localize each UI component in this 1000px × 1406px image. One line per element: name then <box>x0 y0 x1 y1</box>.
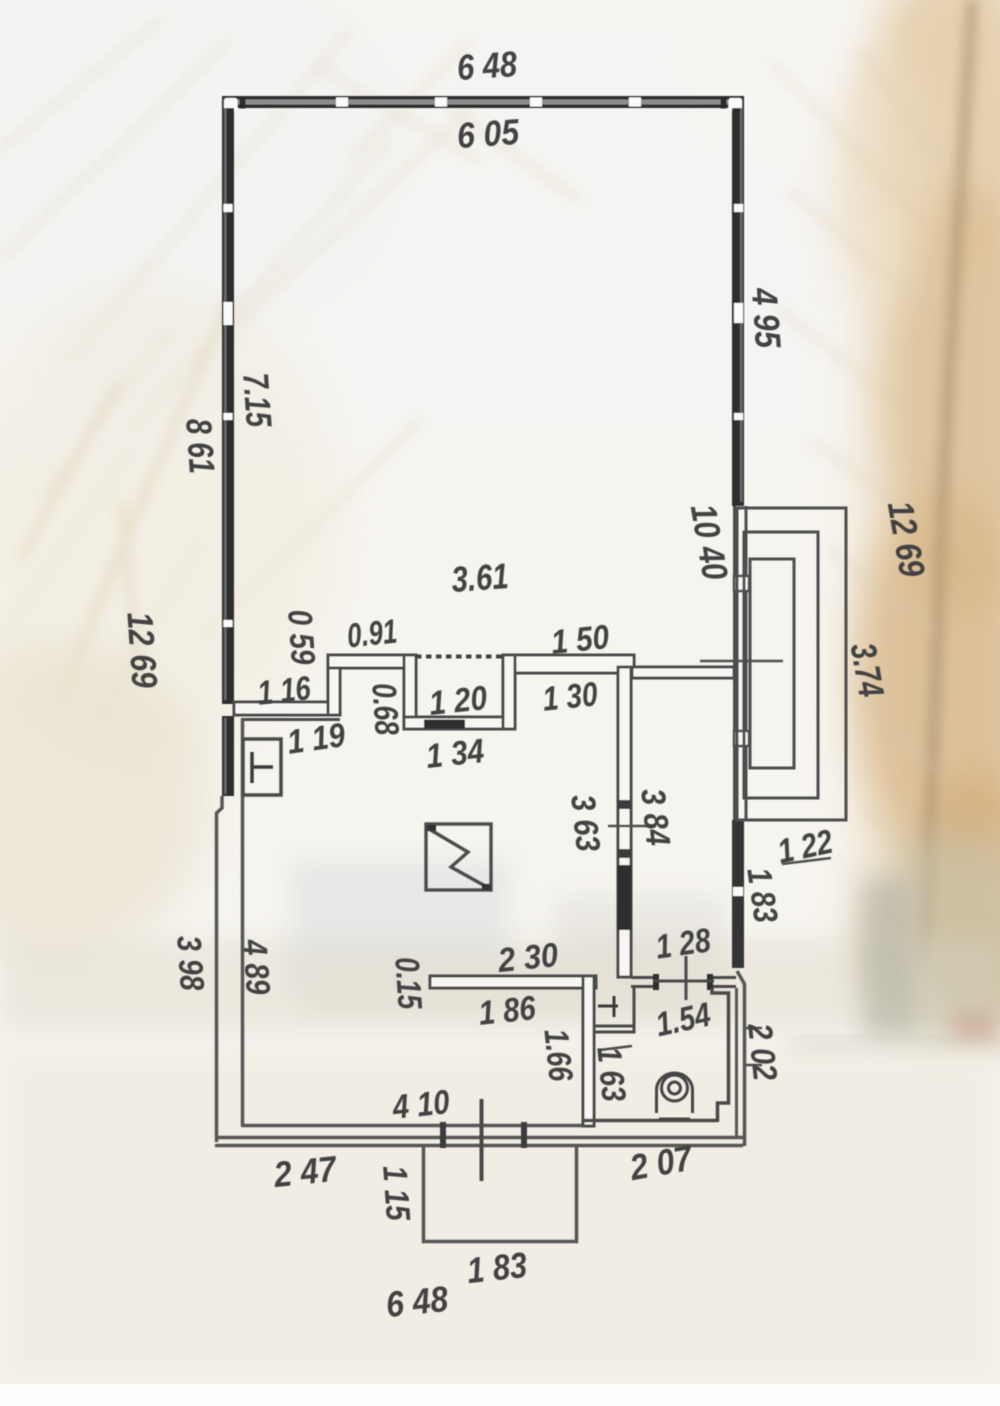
svg-text:3 98: 3 98 <box>169 934 211 992</box>
svg-text:1 28: 1 28 <box>653 921 713 966</box>
svg-text:3 84: 3 84 <box>633 787 677 848</box>
svg-text:1 19: 1 19 <box>285 716 348 762</box>
svg-text:1.66: 1.66 <box>536 1027 579 1084</box>
svg-text:1 34: 1 34 <box>424 732 486 776</box>
svg-text:1 86: 1 86 <box>477 989 539 1033</box>
svg-text:3 63: 3 63 <box>563 793 607 854</box>
svg-text:0.68: 0.68 <box>364 682 406 737</box>
svg-text:4 95: 4 95 <box>744 286 789 350</box>
svg-text:2 47: 2 47 <box>271 1148 340 1196</box>
svg-text:6 48: 6 48 <box>384 1278 450 1325</box>
svg-text:1 50: 1 50 <box>549 618 611 662</box>
svg-text:1 83: 1 83 <box>465 1244 529 1291</box>
svg-text:2 02: 2 02 <box>740 1021 784 1083</box>
svg-text:6 48: 6 48 <box>456 43 519 88</box>
svg-text:12 69: 12 69 <box>119 611 165 690</box>
svg-text:4 10: 4 10 <box>390 1083 452 1127</box>
svg-text:1 16: 1 16 <box>256 669 314 712</box>
svg-text:3.61: 3.61 <box>450 555 510 600</box>
svg-text:1 83: 1 83 <box>739 865 784 925</box>
svg-text:8 61: 8 61 <box>178 417 223 475</box>
svg-text:0.91: 0.91 <box>345 612 399 655</box>
svg-text:1 30: 1 30 <box>541 675 600 719</box>
svg-text:1 63: 1 63 <box>589 1045 633 1104</box>
svg-text:7.15: 7.15 <box>235 372 280 429</box>
svg-text:4 89: 4 89 <box>235 937 277 995</box>
svg-text:6 05: 6 05 <box>456 111 522 156</box>
svg-text:0 59: 0 59 <box>280 608 322 666</box>
svg-text:0.15: 0.15 <box>387 956 429 1011</box>
svg-text:1 15: 1 15 <box>375 1164 417 1222</box>
svg-text:1 20: 1 20 <box>427 679 489 723</box>
svg-text:2 30: 2 30 <box>495 936 560 980</box>
